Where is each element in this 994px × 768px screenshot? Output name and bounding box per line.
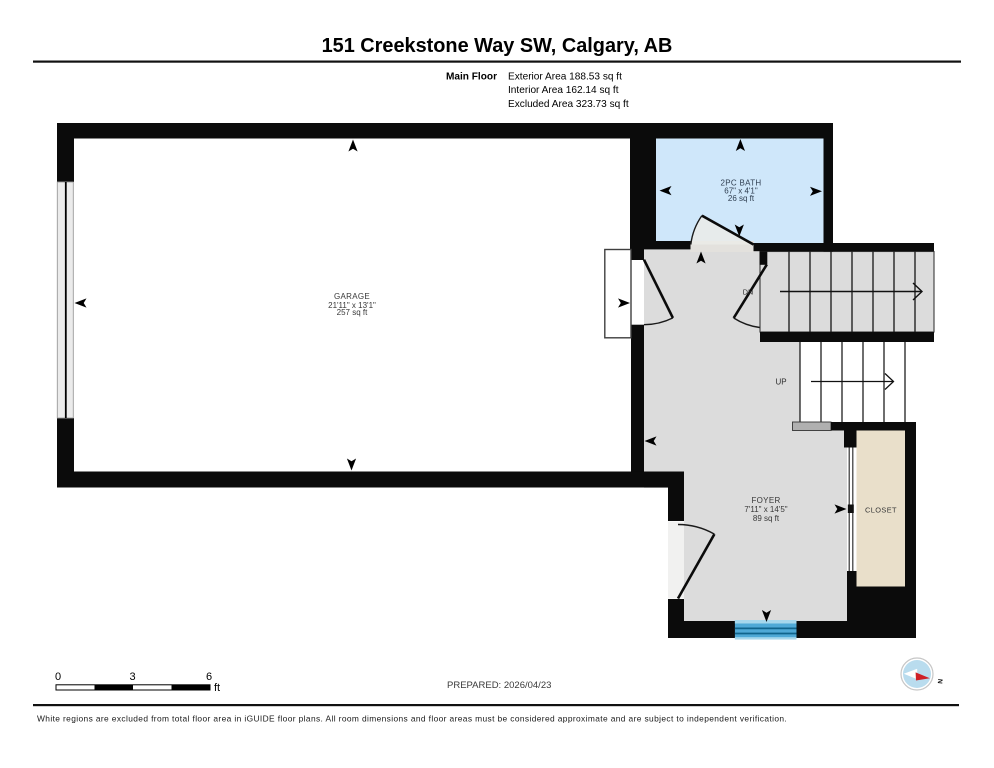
svg-text:Main Floor: Main Floor: [446, 72, 497, 83]
svg-text:7'11" x 14'5": 7'11" x 14'5": [744, 505, 787, 514]
svg-text:White regions are excluded fro: White regions are excluded from total fl…: [37, 714, 787, 724]
svg-text:6: 6: [206, 671, 212, 683]
svg-text:N: N: [936, 679, 943, 685]
svg-text:0: 0: [55, 671, 61, 683]
svg-text:89 sq ft: 89 sq ft: [753, 514, 780, 523]
svg-text:CLOSET: CLOSET: [865, 505, 897, 514]
svg-text:Excluded Area 323.73 sq ft: Excluded Area 323.73 sq ft: [508, 99, 629, 110]
svg-text:GARAGE: GARAGE: [334, 292, 370, 301]
svg-text:257 sq ft: 257 sq ft: [337, 308, 368, 317]
svg-text:26 sq ft: 26 sq ft: [728, 194, 755, 203]
svg-text:151 Creekstone Way SW, Calgary: 151 Creekstone Way SW, Calgary, AB: [322, 35, 673, 57]
svg-text:UP: UP: [775, 378, 786, 387]
svg-text:ft: ft: [214, 682, 220, 694]
svg-text:DN: DN: [743, 287, 753, 296]
svg-text:PREPARED: 2026/04/23: PREPARED: 2026/04/23: [447, 680, 551, 691]
svg-text:Interior Area 162.14 sq ft: Interior Area 162.14 sq ft: [508, 85, 619, 96]
svg-text:Exterior Area 188.53 sq ft: Exterior Area 188.53 sq ft: [508, 72, 622, 83]
svg-text:FOYER: FOYER: [751, 496, 780, 505]
svg-text:3: 3: [129, 671, 135, 683]
